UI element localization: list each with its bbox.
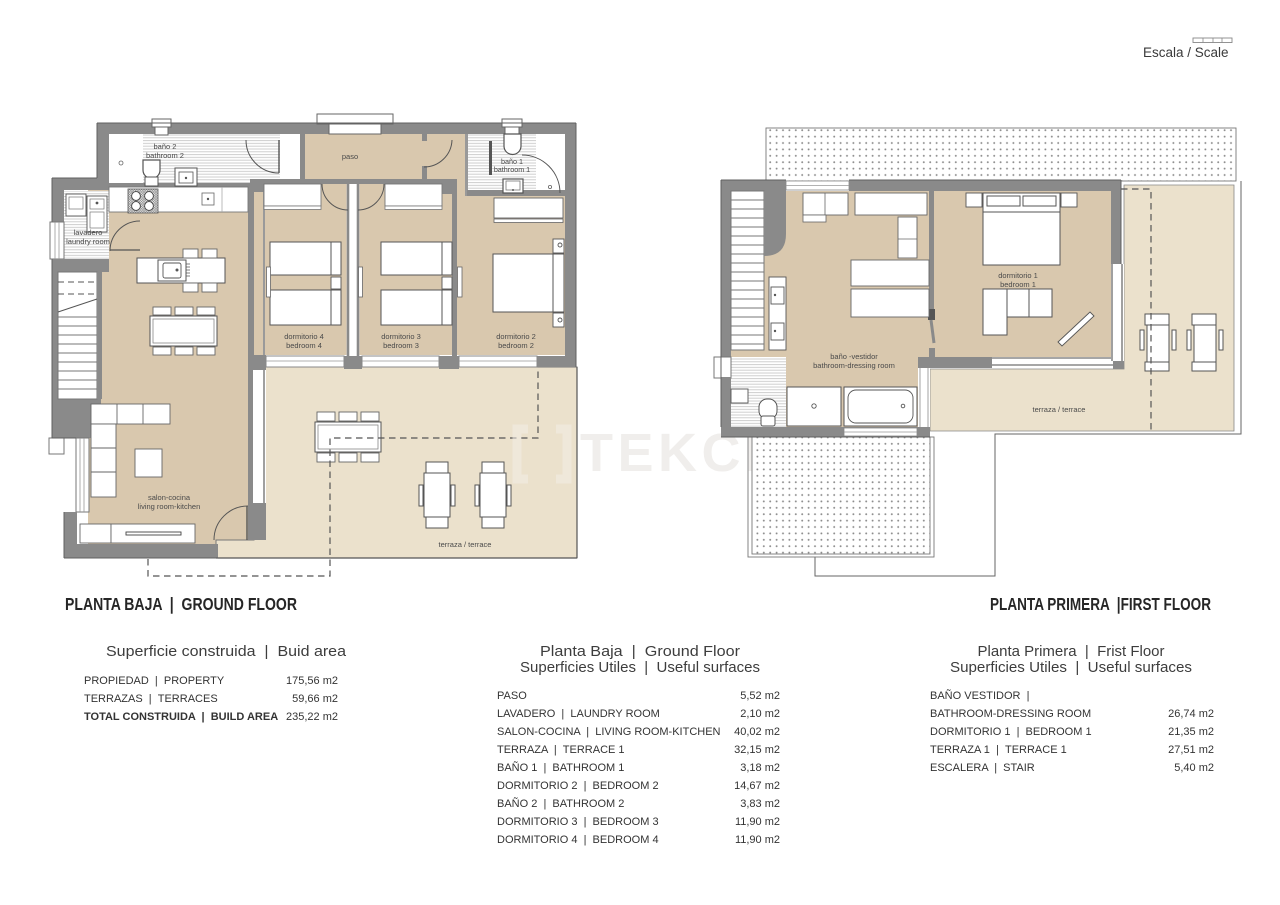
svg-text:SALON-COCINA | LIVING ROOM-K: SALON-COCINA | LIVING ROOM-KITCHEN [497, 726, 721, 738]
svg-text:Superficies Utiles | Useful: Superficies Utiles | Useful surfaces [520, 659, 760, 676]
svg-text:bedroom 4: bedroom 4 [286, 341, 322, 350]
svg-text:terraza / terrace: terraza / terrace [1033, 405, 1086, 414]
svg-text:laundry room: laundry room [66, 237, 110, 246]
svg-text:11,90 m2: 11,90 m2 [735, 816, 780, 828]
svg-text:BAÑO 1 | BATHROOM 1: BAÑO 1 | BATHROOM 1 [497, 761, 624, 774]
svg-text:235,22 m2: 235,22 m2 [286, 711, 338, 723]
svg-text:bathroom 1: bathroom 1 [494, 165, 530, 174]
svg-text:ESCALERA | STAIR: ESCALERA | STAIR [930, 762, 1035, 774]
svg-text:BAÑO 2 | BATHROOM 2: BAÑO 2 | BATHROOM 2 [497, 797, 624, 810]
svg-text:DORMITORIO 4 | BEDROOM 4: DORMITORIO 4 | BEDROOM 4 [497, 834, 659, 846]
svg-text:DORMITORIO 2 | BEDROOM 2: DORMITORIO 2 | BEDROOM 2 [497, 780, 659, 792]
svg-text:baño -vestidor: baño -vestidor [830, 352, 878, 361]
svg-text:bathroom-dressing room: bathroom-dressing room [813, 361, 895, 370]
svg-text:DORMITORIO 1 | BEDROOM 1: DORMITORIO 1 | BEDROOM 1 [930, 726, 1092, 738]
svg-text:bedroom 3: bedroom 3 [383, 341, 419, 350]
svg-text:11,90 m2: 11,90 m2 [735, 834, 780, 846]
svg-text:3,18 m2: 3,18 m2 [740, 762, 780, 774]
svg-text:59,66 m2: 59,66 m2 [292, 693, 338, 705]
svg-text:26,74 m2: 26,74 m2 [1168, 708, 1214, 720]
svg-text:2,10 m2: 2,10 m2 [740, 708, 780, 720]
svg-text:dormitorio 4: dormitorio 4 [284, 332, 324, 341]
svg-text:PLANTA PRIMERA |FIRST FLOOR: PLANTA PRIMERA |FIRST FLOOR [990, 594, 1211, 614]
svg-text:Planta Primera | Frist Floor: Planta Primera | Frist Floor [978, 643, 1165, 660]
svg-text:terraza / terrace: terraza / terrace [439, 540, 492, 549]
svg-text:lavadero: lavadero [74, 228, 103, 237]
svg-text:bathroom 2: bathroom 2 [146, 151, 184, 160]
svg-text:175,56 m2: 175,56 m2 [286, 675, 338, 687]
svg-text:3,83 m2: 3,83 m2 [740, 798, 780, 810]
svg-text:bedroom 1: bedroom 1 [1000, 280, 1036, 289]
svg-text:dormitorio 1: dormitorio 1 [998, 271, 1038, 280]
svg-text:PROPIEDAD | PROPERTY: PROPIEDAD | PROPERTY [84, 675, 225, 687]
svg-text:27,51 m2: 27,51 m2 [1168, 744, 1214, 756]
svg-text:Superficie construida | Buid: Superficie construida | Buid area [106, 643, 347, 660]
svg-text:BATHROOM-DRESSING ROOM: BATHROOM-DRESSING ROOM [930, 708, 1091, 720]
svg-text:21,35 m2: 21,35 m2 [1168, 726, 1214, 738]
svg-text:TOTAL CONSTRUIDA | BUILD ARE: TOTAL CONSTRUIDA | BUILD AREA [84, 711, 278, 723]
svg-text:paso: paso [342, 152, 358, 161]
svg-text:PASO: PASO [497, 690, 527, 702]
svg-text:BAÑO VESTIDOR |: BAÑO VESTIDOR | [930, 689, 1029, 702]
svg-text:TERRAZA 1 | TERRACE 1: TERRAZA 1 | TERRACE 1 [930, 744, 1067, 756]
svg-text:dormitorio 3: dormitorio 3 [381, 332, 421, 341]
svg-text:TERRAZAS | TERRACES: TERRAZAS | TERRACES [84, 693, 218, 705]
svg-text:5,40 m2: 5,40 m2 [1174, 762, 1214, 774]
svg-text:Superficies Utiles | Useful: Superficies Utiles | Useful surfaces [950, 659, 1192, 676]
svg-text:14,67 m2: 14,67 m2 [734, 780, 780, 792]
svg-text:salon-cocina: salon-cocina [148, 493, 191, 502]
svg-text:Escala / Scale: Escala / Scale [1143, 45, 1229, 60]
svg-text:dormitorio 2: dormitorio 2 [496, 332, 536, 341]
svg-text:bedroom 2: bedroom 2 [498, 341, 534, 350]
svg-text:5,52 m2: 5,52 m2 [740, 690, 780, 702]
svg-text:32,15 m2: 32,15 m2 [734, 744, 780, 756]
svg-text:TERRAZA | TERRACE 1: TERRAZA | TERRACE 1 [497, 744, 625, 756]
svg-text:DORMITORIO 3 | BEDROOM 3: DORMITORIO 3 | BEDROOM 3 [497, 816, 659, 828]
svg-text:Planta Baja | Ground Floor: Planta Baja | Ground Floor [540, 643, 740, 660]
svg-text:PLANTA BAJA | GROUND FLOOR: PLANTA BAJA | GROUND FLOOR [65, 594, 297, 614]
svg-text:LAVADERO | LAUNDRY ROOM: LAVADERO | LAUNDRY ROOM [497, 708, 660, 720]
svg-text:living room-kitchen: living room-kitchen [138, 502, 201, 511]
svg-text:baño 2: baño 2 [154, 142, 177, 151]
svg-text:40,02 m2: 40,02 m2 [734, 726, 780, 738]
